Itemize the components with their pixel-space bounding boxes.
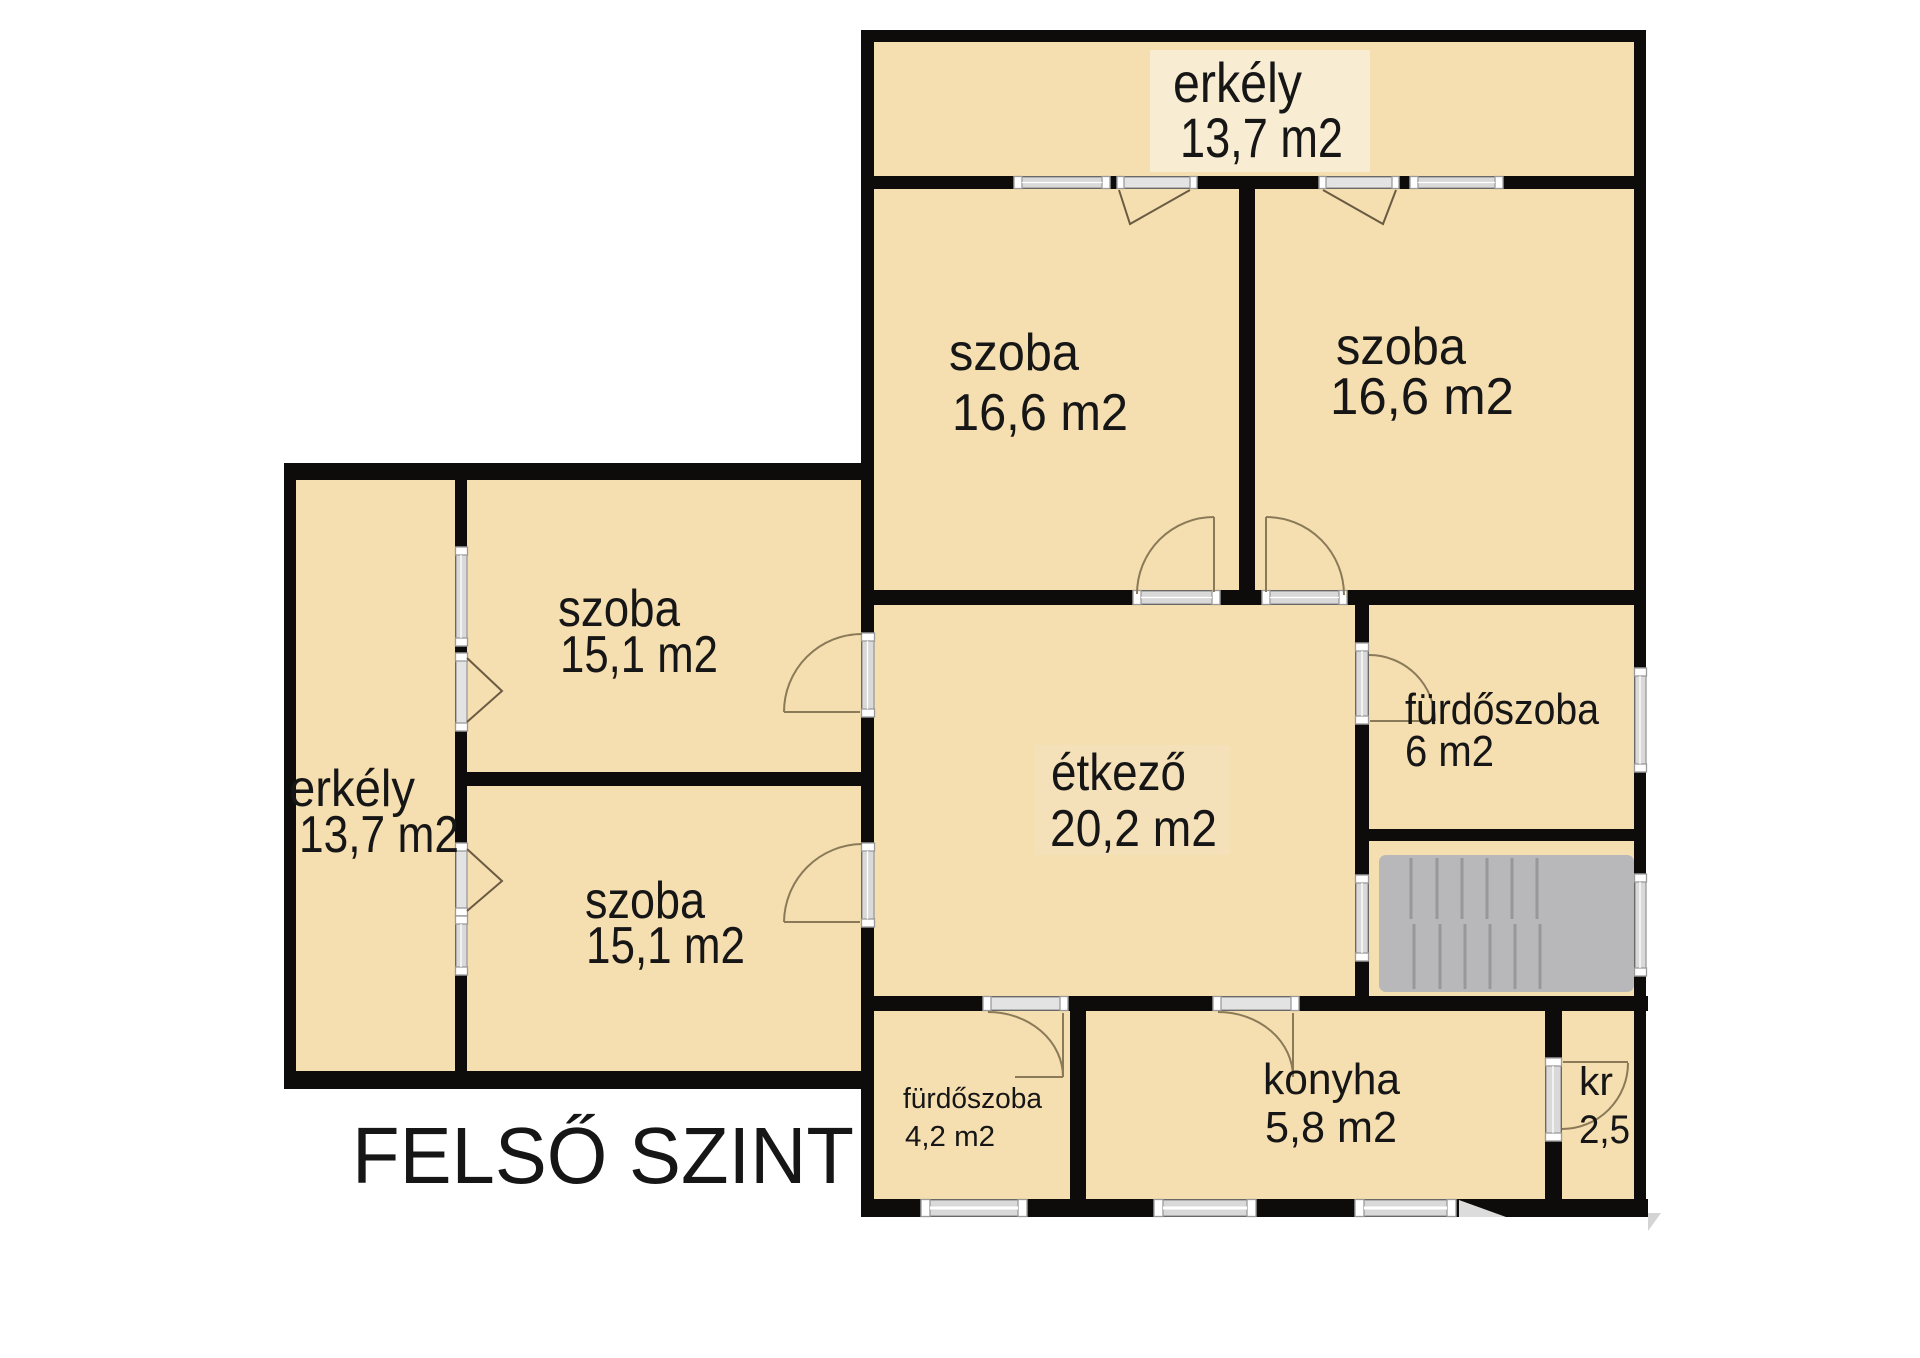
svg-text:15,1 m2: 15,1 m2 bbox=[560, 626, 718, 684]
svg-text:étkező: étkező bbox=[1051, 744, 1186, 802]
svg-text:kr: kr bbox=[1579, 1060, 1613, 1104]
svg-text:20,2 m2: 20,2 m2 bbox=[1050, 800, 1217, 858]
svg-text:16,6 m2: 16,6 m2 bbox=[1330, 368, 1514, 426]
svg-text:16,6 m2: 16,6 m2 bbox=[952, 384, 1128, 442]
svg-text:15,1 m2: 15,1 m2 bbox=[586, 917, 745, 975]
svg-text:fürdőszoba: fürdőszoba bbox=[903, 1083, 1043, 1115]
svg-text:2,5: 2,5 bbox=[1579, 1108, 1630, 1152]
svg-text:erkély: erkély bbox=[1173, 51, 1302, 114]
svg-text:szoba: szoba bbox=[949, 324, 1079, 382]
svg-text:13,7 m2: 13,7 m2 bbox=[1180, 106, 1343, 169]
svg-text:4,2 m2: 4,2 m2 bbox=[905, 1121, 995, 1153]
svg-text:konyha: konyha bbox=[1263, 1055, 1401, 1104]
svg-text:6 m2: 6 m2 bbox=[1405, 727, 1494, 776]
svg-text:13,7 m2: 13,7 m2 bbox=[299, 806, 459, 864]
svg-text:5,8 m2: 5,8 m2 bbox=[1265, 1103, 1397, 1152]
svg-text:FELSŐ SZINT: FELSŐ SZINT bbox=[352, 1111, 854, 1200]
